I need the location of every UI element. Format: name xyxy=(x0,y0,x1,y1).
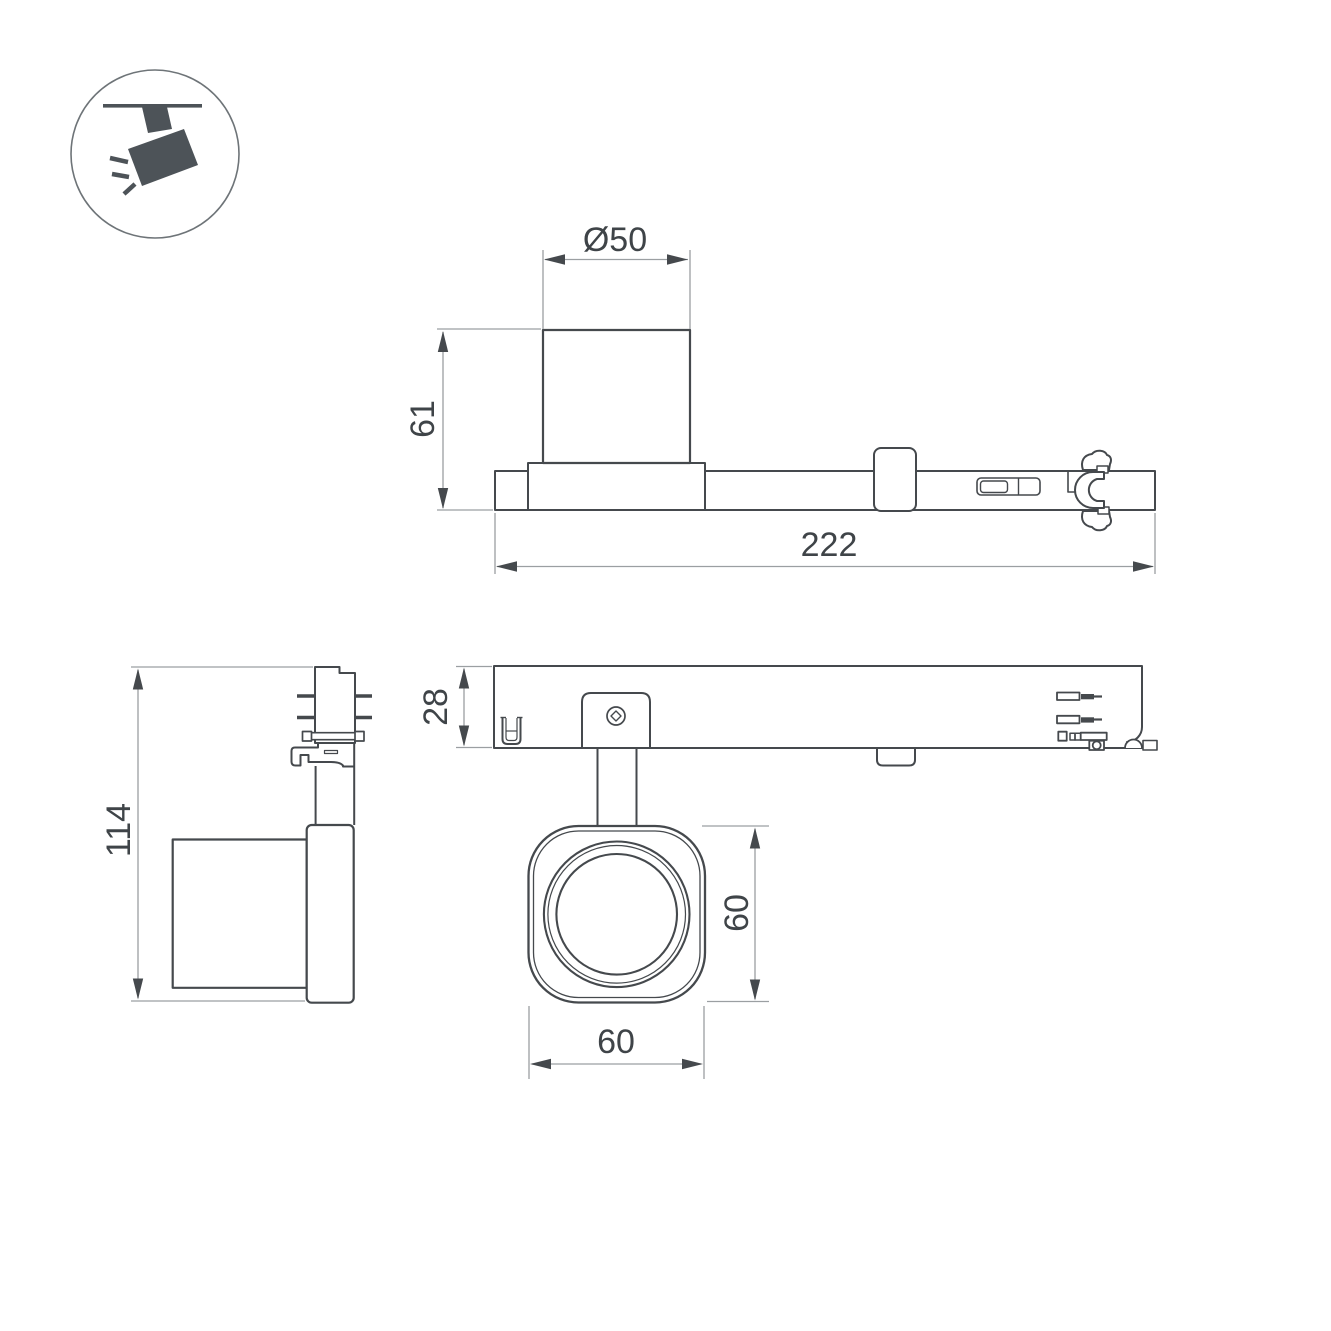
lamp-head-front xyxy=(529,826,706,1003)
lamp-body-cylinder xyxy=(543,330,690,463)
dim-total-length-label: 222 xyxy=(801,526,858,564)
lamp-head-side xyxy=(307,825,354,1003)
track-adapter-section xyxy=(315,667,355,743)
adapter-base xyxy=(528,463,705,510)
adapter-slot xyxy=(325,751,338,754)
end-elevation-view xyxy=(173,667,372,1003)
adapter-hook xyxy=(292,743,355,767)
dim-head-width-label: 60 xyxy=(597,1023,635,1061)
technical-drawing-page: Ø50 61 222 28 114 60 60 xyxy=(0,0,1331,1331)
end-dome xyxy=(1125,740,1142,749)
dim-head-height-label: 60 xyxy=(718,894,756,932)
screw-head xyxy=(607,707,625,725)
lock-knob xyxy=(874,448,916,511)
side-elevation-view xyxy=(495,330,1155,530)
dim-diameter-label: Ø50 xyxy=(583,221,647,259)
lock-knob-plan xyxy=(877,748,915,766)
dim-track-height-label: 28 xyxy=(417,688,455,726)
plan-view xyxy=(494,666,1157,1003)
lens-barrel-side xyxy=(173,840,307,988)
adapter-flange xyxy=(303,732,365,742)
dim-body-height-label: 61 xyxy=(404,400,442,438)
yoke-stem xyxy=(598,748,637,826)
dim-total-height-label: 114 xyxy=(100,803,138,857)
ceiling-track-spotlight-icon xyxy=(71,70,239,238)
end-tab xyxy=(1143,741,1157,751)
power-switch xyxy=(977,478,1040,495)
